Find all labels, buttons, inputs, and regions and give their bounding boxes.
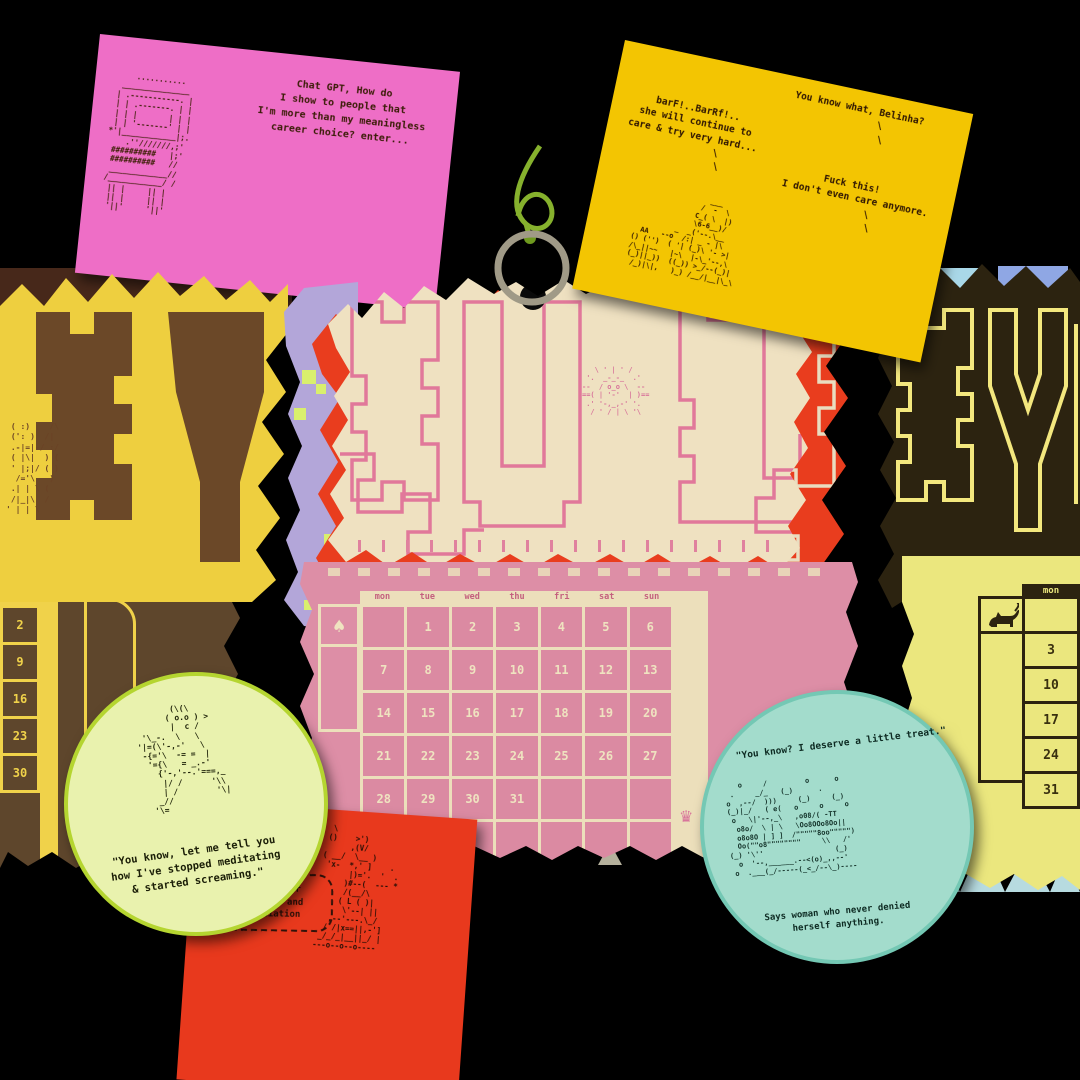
date-cell: 27: [630, 736, 671, 776]
date-cell: 26: [585, 736, 626, 776]
day-header: sun: [629, 591, 674, 604]
date-cell: [363, 607, 404, 647]
date-cell: 18: [541, 693, 582, 733]
sun-ascii-art: \ ' | ' / '. _-_-_ .' -- / o_o \ -- ==( …: [582, 366, 649, 416]
left-date-cell: 9: [0, 642, 40, 682]
date-cell: 8: [407, 650, 448, 690]
date-cell: 30: [452, 779, 493, 819]
right-empty-tall-cell: [978, 631, 1025, 783]
day-header: mon: [360, 591, 405, 604]
llama-ascii-art: (\(\ ( o.o ) > | c / '\_-. \ \ '|=(\'-,-…: [135, 702, 232, 817]
yellow-note-caption-right: Fuck this! I don't even care anymore. \ …: [744, 158, 951, 252]
date-cell: [630, 822, 671, 862]
calendar-collage: JUL sun 2 9 16 23 30 ( :) /\ (': ) /| .-…: [0, 0, 1080, 1080]
date-cell: 19: [585, 693, 626, 733]
teal-coaster: "You know? I deserve a little treat." o …: [700, 690, 974, 964]
spade-cell: ♠: [318, 604, 360, 647]
figure-ascii-art: \ () >') ,(V/ ( __/ \__ ) 'x- *,' ] . |)…: [312, 823, 402, 954]
day-header-row: mon tue wed thu fri sat sun: [360, 591, 674, 604]
date-cell: 7: [363, 650, 404, 690]
right-date-cell: 24: [1022, 736, 1080, 774]
left-date-cell: 23: [0, 716, 40, 756]
green-coaster-quote: "You know, let me tell you how I've stop…: [74, 828, 318, 907]
right-date-cell: 17: [1022, 701, 1080, 739]
date-cell: 14: [363, 693, 404, 733]
right-date-cell: 10: [1022, 666, 1080, 704]
date-cell: 16: [452, 693, 493, 733]
pets-and-chair-ascii-art: ___ / - \ C_( \ |) \6-6__)/ _ _('--.\__ …: [624, 183, 749, 288]
green-coaster: (\(\ ( o.o ) > | c / '\_-. \ \ '|=(\'-,-…: [64, 672, 328, 936]
crown-icon: ♛: [679, 807, 693, 826]
pink-note: ........... _______________ | .---------…: [75, 34, 460, 311]
empty-tall-cell: [318, 644, 360, 732]
metal-ring-icon: [498, 234, 566, 302]
left-date-cell: 16: [0, 679, 40, 719]
date-cell: 25: [541, 736, 582, 776]
date-cell: 3: [496, 607, 537, 647]
date-cell: 2: [452, 607, 493, 647]
date-cell: 12: [585, 650, 626, 690]
date-cell: 31: [496, 779, 537, 819]
date-cell: 6: [630, 607, 671, 647]
date-cell: [630, 779, 671, 819]
pixel-decoration: [302, 370, 316, 384]
date-cell: 15: [407, 693, 448, 733]
green-string: [517, 146, 552, 228]
date-cell: [541, 779, 582, 819]
teal-caption-bottom: Says woman who never denied herself anyt…: [737, 897, 938, 940]
day-header: tue: [405, 591, 450, 604]
pixel-decoration: [316, 384, 326, 394]
pink-note-message: Chat GPT, How do I show to people that I…: [237, 71, 448, 152]
teal-caption-top: "You know? I deserve a little treat.": [728, 724, 954, 762]
date-cell: 1: [407, 607, 448, 647]
pixel-decoration: [294, 408, 306, 420]
day-header: fri: [539, 591, 584, 604]
date-cell: 21: [363, 736, 404, 776]
left-date-cell: 2: [0, 605, 40, 645]
day-header: sat: [584, 591, 629, 604]
computer-desk-ascii-art: ........... _______________ | .---------…: [96, 69, 196, 218]
right-date-cell: 31: [1022, 771, 1080, 809]
date-cell: 10: [496, 650, 537, 690]
cat-cell: [978, 596, 1025, 634]
right-date-cell: [1022, 596, 1080, 634]
yellow-note-caption-top: You know what, Belinha? \ \: [749, 80, 965, 163]
date-cell: 5: [585, 607, 626, 647]
castellation-strip: [350, 540, 790, 552]
date-cell: [496, 822, 537, 862]
date-cell: 24: [496, 736, 537, 776]
date-cell: 29: [407, 779, 448, 819]
left-figure-ascii-art: ( :) /\ (': ) /| .-|=|-/ :/ ( |\| ) ( ' …: [6, 422, 59, 516]
bathtub-ascii-art: o / o o . _/_ (_) . o ,--/ ))) (_) (_) (…: [725, 774, 858, 879]
date-cell: 22: [407, 736, 448, 776]
date-cell: 4: [541, 607, 582, 647]
cat-icon: [985, 603, 1019, 627]
date-cell: [541, 822, 582, 862]
day-header: thu: [495, 591, 540, 604]
date-cell: 11: [541, 650, 582, 690]
day-header: wed: [450, 591, 495, 604]
date-cell: 13: [630, 650, 671, 690]
left-page-title-flap: ( :) /\ (': ) /| .-|=|-/ :/ ( |\| ) ( ' …: [0, 272, 288, 602]
date-cell: 9: [452, 650, 493, 690]
date-cell: 23: [452, 736, 493, 776]
castellation-strip: [328, 568, 828, 576]
date-cell: 17: [496, 693, 537, 733]
date-cell: 20: [630, 693, 671, 733]
left-date-cell: 30: [0, 753, 40, 793]
right-date-cell: 3: [1022, 631, 1080, 669]
date-cell: [585, 779, 626, 819]
